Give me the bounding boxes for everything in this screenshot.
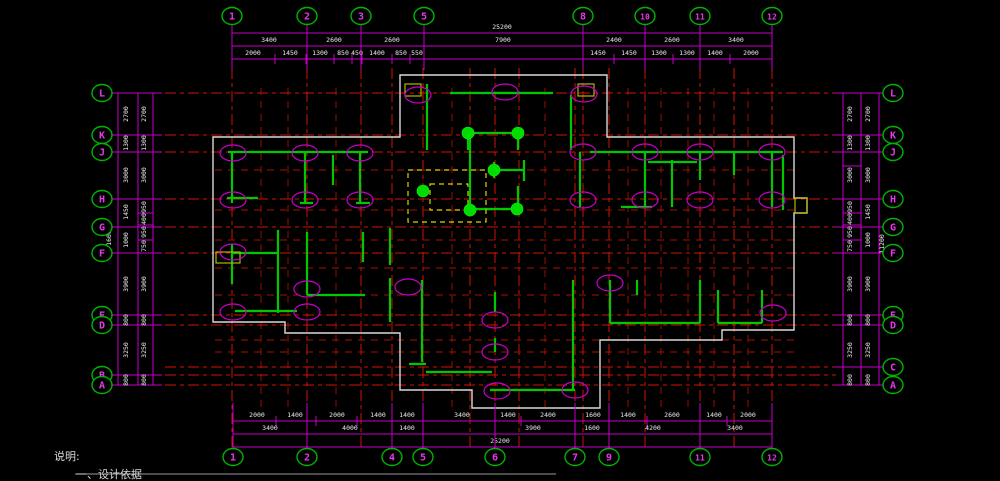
svg-text:8: 8 <box>580 12 586 23</box>
svg-text:3900: 3900 <box>864 276 872 292</box>
notes-title: 说明: <box>54 450 80 463</box>
svg-text:950: 950 <box>846 226 854 238</box>
svg-text:3000: 3000 <box>140 167 148 183</box>
svg-text:2600: 2600 <box>664 411 680 419</box>
svg-text:C: C <box>890 363 896 374</box>
svg-text:1450: 1450 <box>864 204 872 220</box>
svg-text:850: 850 <box>337 49 349 57</box>
svg-text:4200: 4200 <box>645 424 661 432</box>
svg-text:1300: 1300 <box>864 135 872 151</box>
axis-bubbles-top[interactable]: 12358101112 <box>222 8 782 25</box>
svg-text:2000: 2000 <box>740 411 756 419</box>
svg-text:7900: 7900 <box>495 36 511 44</box>
svg-text:800: 800 <box>140 374 148 386</box>
svg-text:1450: 1450 <box>122 204 130 220</box>
axis-bubbles-right[interactable]: LKJHGFEDCA <box>883 85 903 394</box>
svg-text:550: 550 <box>411 49 423 57</box>
svg-text:850: 850 <box>395 49 407 57</box>
svg-text:H: H <box>99 195 105 206</box>
svg-text:2000: 2000 <box>249 411 265 419</box>
svg-text:1400: 1400 <box>287 411 303 419</box>
dimensions-bottom: 2000140020001400140034001400240016001400… <box>233 403 772 452</box>
svg-text:H: H <box>890 195 896 206</box>
svg-text:11: 11 <box>695 454 705 463</box>
svg-text:J: J <box>99 148 105 159</box>
dimensions-right: 2700130030009504009507503900800325080027… <box>834 93 886 386</box>
svg-text:3900: 3900 <box>525 424 541 432</box>
svg-text:12: 12 <box>767 13 777 22</box>
svg-text:3000: 3000 <box>846 167 854 183</box>
svg-text:2600: 2600 <box>326 36 342 44</box>
svg-text:12: 12 <box>767 454 777 463</box>
svg-text:800: 800 <box>846 314 854 326</box>
svg-text:1300: 1300 <box>122 135 130 151</box>
svg-text:1400: 1400 <box>399 411 415 419</box>
svg-text:3400: 3400 <box>728 36 744 44</box>
svg-text:A: A <box>99 381 105 392</box>
svg-text:1600: 1600 <box>585 411 601 419</box>
svg-text:1400: 1400 <box>620 411 636 419</box>
svg-text:3900: 3900 <box>846 276 854 292</box>
svg-text:J: J <box>890 148 896 159</box>
svg-text:2700: 2700 <box>122 106 130 122</box>
cad-canvas[interactable]: 2520034002600260079002400260034002000145… <box>0 0 1000 475</box>
svg-text:1: 1 <box>229 12 235 23</box>
svg-text:K: K <box>99 131 105 142</box>
svg-text:F: F <box>890 249 896 260</box>
svg-text:3400: 3400 <box>261 36 277 44</box>
svg-text:2: 2 <box>304 12 310 23</box>
svg-text:2700: 2700 <box>140 106 148 122</box>
svg-text:7: 7 <box>572 453 578 464</box>
svg-text:5: 5 <box>421 12 427 23</box>
svg-text:800: 800 <box>140 314 148 326</box>
svg-text:1600: 1600 <box>584 424 600 432</box>
svg-text:1000: 1000 <box>122 232 130 248</box>
svg-text:1400: 1400 <box>707 49 723 57</box>
svg-text:11: 11 <box>695 13 705 22</box>
svg-text:3400: 3400 <box>454 411 470 419</box>
svg-text:2700: 2700 <box>846 106 854 122</box>
svg-text:750: 750 <box>140 240 148 252</box>
svg-text:10: 10 <box>640 13 650 22</box>
dimensions-left: 2700130030001450100039008003250800270013… <box>105 93 162 386</box>
svg-text:3250: 3250 <box>122 342 130 358</box>
svg-text:3250: 3250 <box>140 342 148 358</box>
svg-text:1300: 1300 <box>140 135 148 151</box>
svg-text:400: 400 <box>846 213 854 225</box>
svg-text:3000: 3000 <box>122 167 130 183</box>
svg-text:800: 800 <box>864 374 872 386</box>
svg-text:950: 950 <box>846 201 854 213</box>
svg-text:1450: 1450 <box>621 49 637 57</box>
svg-text:L: L <box>99 89 105 100</box>
svg-text:2400: 2400 <box>606 36 622 44</box>
svg-text:1300: 1300 <box>679 49 695 57</box>
svg-text:3: 3 <box>358 12 364 23</box>
svg-text:800: 800 <box>122 374 130 386</box>
axis-bubbles-bottom[interactable]: 12456791112 <box>223 449 782 466</box>
svg-text:800: 800 <box>846 374 854 386</box>
svg-text:4000: 4000 <box>342 424 358 432</box>
svg-text:1000: 1000 <box>864 232 872 248</box>
svg-text:2400: 2400 <box>540 411 556 419</box>
svg-text:25200: 25200 <box>492 23 512 31</box>
svg-text:1: 1 <box>230 453 236 464</box>
svg-text:950: 950 <box>140 201 148 213</box>
svg-text:3400: 3400 <box>727 424 743 432</box>
svg-text:950: 950 <box>140 226 148 238</box>
svg-text:3900: 3900 <box>140 276 148 292</box>
svg-text:A: A <box>890 381 896 392</box>
svg-text:1400: 1400 <box>500 411 516 419</box>
svg-text:2000: 2000 <box>743 49 759 57</box>
walls[interactable] <box>216 84 807 390</box>
svg-text:2600: 2600 <box>664 36 680 44</box>
svg-text:9: 9 <box>606 453 612 464</box>
svg-text:G: G <box>99 223 105 234</box>
svg-text:D: D <box>890 321 896 332</box>
svg-text:5: 5 <box>420 453 426 464</box>
svg-text:2000: 2000 <box>245 49 261 57</box>
svg-text:750: 750 <box>846 240 854 252</box>
svg-text:F: F <box>99 249 105 260</box>
svg-text:K: K <box>890 131 896 142</box>
svg-text:1450: 1450 <box>282 49 298 57</box>
building-outline[interactable] <box>213 75 807 408</box>
dimensions-top: 2520034002600260079002400260034002000145… <box>232 23 772 70</box>
svg-text:3250: 3250 <box>846 342 854 358</box>
svg-text:2600: 2600 <box>384 36 400 44</box>
svg-text:400: 400 <box>140 213 148 225</box>
svg-text:1300: 1300 <box>651 49 667 57</box>
svg-text:G: G <box>890 223 896 234</box>
svg-text:2: 2 <box>304 453 310 464</box>
svg-text:6: 6 <box>492 453 498 464</box>
svg-text:1400: 1400 <box>369 49 385 57</box>
svg-text:800: 800 <box>122 314 130 326</box>
svg-text:25200: 25200 <box>490 437 510 445</box>
svg-text:2000: 2000 <box>329 411 345 419</box>
svg-text:1400: 1400 <box>706 411 722 419</box>
svg-text:3000: 3000 <box>864 167 872 183</box>
svg-text:L: L <box>890 89 896 100</box>
svg-text:1400: 1400 <box>370 411 386 419</box>
svg-text:3900: 3900 <box>122 276 130 292</box>
svg-text:D: D <box>99 321 105 332</box>
svg-text:3250: 3250 <box>864 342 872 358</box>
svg-text:1300: 1300 <box>312 49 328 57</box>
svg-text:1450: 1450 <box>590 49 606 57</box>
svg-text:800: 800 <box>864 314 872 326</box>
svg-text:2700: 2700 <box>864 106 872 122</box>
svg-text:1300: 1300 <box>846 135 854 151</box>
svg-text:4: 4 <box>389 453 395 464</box>
svg-text:3400: 3400 <box>262 424 278 432</box>
svg-text:1400: 1400 <box>399 424 415 432</box>
